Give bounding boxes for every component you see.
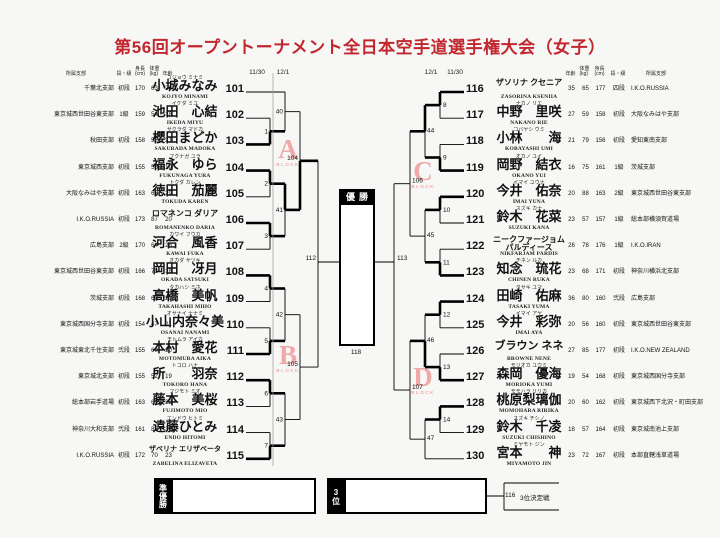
match-number-label: 9 <box>443 155 447 162</box>
player-age: 23 <box>565 217 578 223</box>
player-name: ザソリナ クセニア <box>490 79 568 87</box>
player-height: 177 <box>593 348 608 354</box>
player-age: 20 <box>565 400 578 406</box>
player-romaji: CHINEN RUKA <box>490 277 568 283</box>
player-age: 27 <box>565 348 578 354</box>
player-age: 19 <box>162 165 175 171</box>
player-branch: 東京城西支部 <box>38 165 114 171</box>
player-name: 鈴木 花菜 <box>490 210 568 223</box>
player-weight: 79 <box>579 138 592 144</box>
player-weight: 63 <box>148 191 161 197</box>
player-branch: I.K.O.IRAN <box>631 243 719 249</box>
player-number: 127 <box>466 371 488 383</box>
player-number: 111 <box>222 345 244 357</box>
player-weight: 56 <box>579 322 592 328</box>
player-name: 中野 里咲 <box>490 105 568 118</box>
player-number: 102 <box>222 109 244 121</box>
player-age: 19 <box>162 374 175 380</box>
player-romaji: NAKANO RIE <box>490 120 568 126</box>
player-height: 161 <box>593 165 608 171</box>
player-rank: 初段 <box>115 86 133 92</box>
player-height: 155 <box>133 374 147 380</box>
player-weight: 59 <box>579 112 592 118</box>
player-branch: 広島支部 <box>631 296 719 302</box>
player-romaji: ENDO HITOMI <box>146 435 224 441</box>
player-rank: 初段 <box>115 191 133 197</box>
player-rank: 2級 <box>610 191 628 197</box>
player-branch: 本部直轄浅草道場 <box>631 453 719 459</box>
player-age: 27 <box>565 112 578 118</box>
player-age: 21 <box>162 138 175 144</box>
player-branch: 東京城南池上支部 <box>631 427 719 433</box>
player-romaji: OKADA SATSUKI <box>146 277 224 283</box>
player-weight: 52 <box>148 374 161 380</box>
player-age: 21 <box>565 138 578 144</box>
player-branch: 大阪なみはや支部 <box>38 191 114 197</box>
player-weight: 88 <box>579 191 592 197</box>
player-number: 106 <box>222 214 244 226</box>
player-weight: 52 <box>148 138 161 144</box>
player-weight: 55 <box>148 165 161 171</box>
player-branch: 総本部横須賀道場 <box>631 217 719 223</box>
player-romaji: MORIOKA YUMI <box>490 382 568 388</box>
player-rank: 初段 <box>610 348 628 354</box>
player-height: 168 <box>593 374 608 380</box>
player-age: 18 <box>162 269 175 275</box>
player-rank: 初段 <box>610 400 628 406</box>
match-number-label: 13 <box>443 364 451 371</box>
player-romaji: ZASORINA KSENIIA <box>490 94 568 100</box>
player-branch: I.K.O.RUSSIA <box>38 453 114 459</box>
player-height: 171 <box>593 269 608 275</box>
player-weight: 57 <box>579 217 592 223</box>
player-number: 115 <box>222 450 244 462</box>
player-name: 今井 彩弥 <box>490 315 568 328</box>
match-number-label: 45 <box>427 232 435 239</box>
player-rank: 初段 <box>610 453 628 459</box>
player-number: 105 <box>222 188 244 200</box>
player-name: 田崎 佑麻 <box>490 289 568 302</box>
player-rank: 初段 <box>610 138 628 144</box>
match-number-label: 105 <box>287 361 298 368</box>
player-romaji: MOTOMURA AIKA <box>146 356 224 362</box>
player-weight: 57 <box>579 427 592 433</box>
player-branch: 千葉北支部 <box>38 86 114 92</box>
player-rank: 初段 <box>115 374 133 380</box>
match-number-label: 4 <box>264 286 268 293</box>
player-age: 23 <box>565 453 578 459</box>
match-number-label: 112 <box>306 255 317 262</box>
player-number: 130 <box>466 450 488 462</box>
player-weight: 83 <box>148 427 161 433</box>
player-number: 116 <box>466 83 488 95</box>
player-branch: 神奈川横浜北支部 <box>631 269 719 275</box>
player-branch: 茨城支部 <box>631 165 719 171</box>
player-height: 168 <box>133 296 147 302</box>
match-number-label: 40 <box>276 109 284 116</box>
player-weight: 85 <box>579 348 592 354</box>
player-age: 26 <box>162 243 175 249</box>
player-number: 117 <box>466 109 488 121</box>
player-height: 167 <box>593 453 608 459</box>
player-height: 162 <box>593 400 608 406</box>
player-rank: 初段 <box>610 427 628 433</box>
match-number-label: 106 <box>412 178 423 185</box>
player-romaji: SUZUKI CHISHINO <box>490 435 568 441</box>
player-romaji: BROWNE NENE <box>490 356 568 362</box>
player-number: 113 <box>222 397 244 409</box>
player-rank: 弐段 <box>115 348 133 354</box>
match-number-label: 3 <box>264 233 268 240</box>
player-height: 176 <box>593 243 608 249</box>
match-number-label: 6 <box>264 390 268 397</box>
player-age: 20 <box>162 296 175 302</box>
player-age: 18 <box>162 112 175 118</box>
player-rank: 初段 <box>610 269 628 275</box>
player-romaji: TOKORO HANA <box>146 382 224 388</box>
player-romaji: NIKFARJAM PARDIS <box>490 251 568 257</box>
match-number-label: 8 <box>443 102 447 109</box>
player-height: 173 <box>133 217 147 223</box>
player-height: 164 <box>593 427 608 433</box>
player-number: 101 <box>222 83 244 95</box>
player-age: 29 <box>162 191 175 197</box>
player-rank: 1級 <box>610 165 628 171</box>
player-romaji: KOBAYASHI UMI <box>490 146 568 152</box>
player-romaji: ROMANENKO DARIA <box>146 225 224 231</box>
match-number-label: 43 <box>276 417 284 424</box>
player-name: 小林 海 <box>490 131 568 144</box>
player-height: 155 <box>133 165 147 171</box>
match-number-label: 46 <box>427 337 435 344</box>
match-number-label: 47 <box>427 435 435 442</box>
player-rank: 四段 <box>610 86 628 92</box>
player-rank: 初段 <box>115 322 133 328</box>
player-romaji: TOKUDA KAREN <box>146 199 224 205</box>
player-age: 30 <box>162 348 175 354</box>
player-rank: 1級 <box>115 112 133 118</box>
player-romaji: IKEDA MIYU <box>146 120 224 126</box>
player-height: 166 <box>133 269 147 275</box>
match-number-label: 12 <box>443 312 451 319</box>
player-age: 22 <box>162 400 175 406</box>
player-height: 170 <box>133 86 147 92</box>
match-number-label: 104 <box>287 155 298 162</box>
player-number: 123 <box>466 266 488 278</box>
player-branch: 大阪なみはや支部 <box>631 112 719 118</box>
match-number-label: 7 <box>264 443 268 450</box>
player-rank: 初段 <box>115 453 133 459</box>
player-number: 112 <box>222 371 244 383</box>
player-weight: 60 <box>148 296 161 302</box>
player-age: 18 <box>565 427 578 433</box>
match-number-label: 41 <box>276 207 284 214</box>
player-branch: 東京城西世田谷東支部 <box>631 191 719 197</box>
player-rank: 初段 <box>610 374 628 380</box>
player-rank: 初段 <box>115 217 133 223</box>
player-romaji: SAKURADA MADOKA <box>146 146 224 152</box>
player-branch: 愛知東南支部 <box>631 138 719 144</box>
player-branch: 東京城西世田谷東支部 <box>38 269 114 275</box>
player-age: 20 <box>162 217 175 223</box>
player-weight: 80 <box>579 296 592 302</box>
player-rank: 弐段 <box>115 427 133 433</box>
player-weight: 54 <box>579 374 592 380</box>
player-branch: 総本部岩手道場 <box>38 400 114 406</box>
player-branch: 東京城西下北沢・町田支部 <box>631 400 719 406</box>
player-rank: 初段 <box>115 165 133 171</box>
player-weight: 62 <box>148 400 161 406</box>
player-number: 125 <box>466 319 488 331</box>
player-romaji: IMAI YUNA <box>490 199 568 205</box>
tournament-sheet: 第56回オープントーナメント全日本空手道選手権大会（女子） 優勝 準優勝 3位 … <box>0 0 720 538</box>
player-name: 岡野 結衣 <box>490 158 568 171</box>
player-height: 163 <box>133 400 147 406</box>
player-romaji: IMAI AYA <box>490 330 568 336</box>
player-age: 20 <box>565 322 578 328</box>
player-romaji: KAWAI FUKA <box>146 251 224 257</box>
match-number-label: 44 <box>427 127 435 134</box>
player-weight: 72 <box>148 269 161 275</box>
player-romaji: FUJIMOTO MIO <box>146 408 224 414</box>
player-romaji: KOJYO MINAMI <box>146 94 224 100</box>
player-number: 121 <box>466 214 488 226</box>
player-age: 16 <box>565 165 578 171</box>
player-romaji: SUZUKI KANA <box>490 225 568 231</box>
player-height: 160 <box>593 322 608 328</box>
player-name: 森岡 優海 <box>490 367 568 380</box>
player-branch: 茨城支部 <box>38 296 114 302</box>
player-romaji: MIYAMOTO JIN <box>490 461 568 467</box>
player-romaji: ZABELINA ELIZAVETA <box>146 461 224 467</box>
player-rank: 弐段 <box>610 296 628 302</box>
player-height: 163 <box>133 191 147 197</box>
player-rank: 初段 <box>115 269 133 275</box>
player-age: 23 <box>565 269 578 275</box>
player-age: 30 <box>162 427 175 433</box>
player-weight: 63 <box>148 86 161 92</box>
player-name: 宮本 神 <box>490 446 568 459</box>
player-height: 160 <box>593 296 608 302</box>
player-rank: 初段 <box>115 138 133 144</box>
player-number: 110 <box>222 319 244 331</box>
match-number-label: 11 <box>443 259 450 266</box>
player-age: 20 <box>162 86 175 92</box>
match-number-label: 2 <box>264 181 268 188</box>
player-height: 155 <box>133 348 147 354</box>
player-age: 23 <box>162 453 175 459</box>
player-height: 177 <box>593 86 608 92</box>
match-number-label: 1 <box>264 128 268 135</box>
player-number: 122 <box>466 240 488 252</box>
match-number-label: 42 <box>276 312 284 319</box>
player-number: 120 <box>466 188 488 200</box>
player-name: 鈴木 千凌 <box>490 420 568 433</box>
player-name: 知念 琉花 <box>490 262 568 275</box>
player-weight: 78 <box>579 243 592 249</box>
player-weight: 47 <box>148 322 161 328</box>
player-rank: 初段 <box>115 296 133 302</box>
player-rank: 初段 <box>610 322 628 328</box>
player-weight: 75 <box>579 165 592 171</box>
player-branch: I.K.O.NEW ZEALAND <box>631 348 719 354</box>
player-rank: 初段 <box>115 400 133 406</box>
player-romaji: FUKUNAGA YURA <box>146 173 224 179</box>
player-name: ブラウン ネネ <box>490 341 568 352</box>
player-weight: 65 <box>579 86 592 92</box>
player-branch: 秋田支部 <box>38 138 114 144</box>
player-branch: 東京城東北千住支部 <box>38 348 114 354</box>
player-number: 114 <box>222 424 244 436</box>
player-branch: I.K.O.RUSSIA <box>631 86 719 92</box>
player-rank: 初段 <box>610 112 628 118</box>
player-branch: 広島支部 <box>38 243 114 249</box>
match-number-label: 118 <box>351 349 362 356</box>
player-branch: 東京城西国分寺支部 <box>631 374 719 380</box>
player-romaji: TASAKI YUMA <box>490 304 568 310</box>
player-branch: 東京城西世田谷東支部 <box>38 112 114 118</box>
match-number-label: 107 <box>412 384 423 391</box>
player-number: 124 <box>466 293 488 305</box>
match-number-label: 5 <box>264 338 268 345</box>
player-age: 36 <box>565 296 578 302</box>
player-weight: 64 <box>148 243 161 249</box>
player-weight: 60 <box>148 348 161 354</box>
player-number: 109 <box>222 293 244 305</box>
player-height: 156 <box>593 138 608 144</box>
player-number: 118 <box>466 135 488 147</box>
player-branch: 東京城西世田谷東支部 <box>631 322 719 328</box>
player-number: 103 <box>222 135 244 147</box>
player-weight: 87 <box>148 217 161 223</box>
player-branch: 東京城北支部 <box>38 374 114 380</box>
player-rank: 2級 <box>115 243 133 249</box>
player-height: 172 <box>133 453 147 459</box>
player-height: 157 <box>593 217 608 223</box>
player-romaji: MOMOHARA RIRIKA <box>490 408 568 414</box>
player-height: 158 <box>133 138 147 144</box>
player-romaji: OKANO YUI <box>490 173 568 179</box>
match-number-label: 113 <box>397 255 408 262</box>
match-number-label: 14 <box>443 417 451 424</box>
player-weight: 72 <box>579 453 592 459</box>
player-height: 159 <box>133 112 147 118</box>
match-number-label: 10 <box>443 207 451 214</box>
player-age: 20 <box>565 191 578 197</box>
player-age: 19 <box>565 374 578 380</box>
player-number: 119 <box>466 162 488 174</box>
player-branch: 神奈川大和支部 <box>38 427 114 433</box>
player-weight: 70 <box>148 453 161 459</box>
player-rank: 1級 <box>610 243 628 249</box>
player-age: 21 <box>162 322 175 328</box>
player-rank: 1級 <box>610 217 628 223</box>
player-romaji: OSANAI NANAMI <box>146 330 224 336</box>
player-number: 128 <box>466 397 488 409</box>
player-number: 104 <box>222 162 244 174</box>
player-romaji: TAKAHASHI MIHO <box>146 304 224 310</box>
player-height: 170 <box>133 243 147 249</box>
player-weight: 68 <box>579 269 592 275</box>
player-number: 107 <box>222 240 244 252</box>
player-weight: 54 <box>148 112 161 118</box>
player-height: 163 <box>593 191 608 197</box>
player-name: 今井 佑奈 <box>490 184 568 197</box>
player-number: 108 <box>222 266 244 278</box>
player-age: 35 <box>565 86 578 92</box>
player-name: ニークファージョム パルディース <box>490 236 568 252</box>
player-name: 桃原梨璃伽 <box>490 393 568 406</box>
player-number: 126 <box>466 345 488 357</box>
player-weight: 60 <box>579 400 592 406</box>
player-number: 129 <box>466 424 488 436</box>
player-branch: I.K.O.RUSSIA <box>38 217 114 223</box>
player-branch: 東京城西国分寺支部 <box>38 322 114 328</box>
player-height: 161 <box>133 427 147 433</box>
player-height: 158 <box>593 112 608 118</box>
player-age: 26 <box>565 243 578 249</box>
player-height: 154 <box>133 322 147 328</box>
